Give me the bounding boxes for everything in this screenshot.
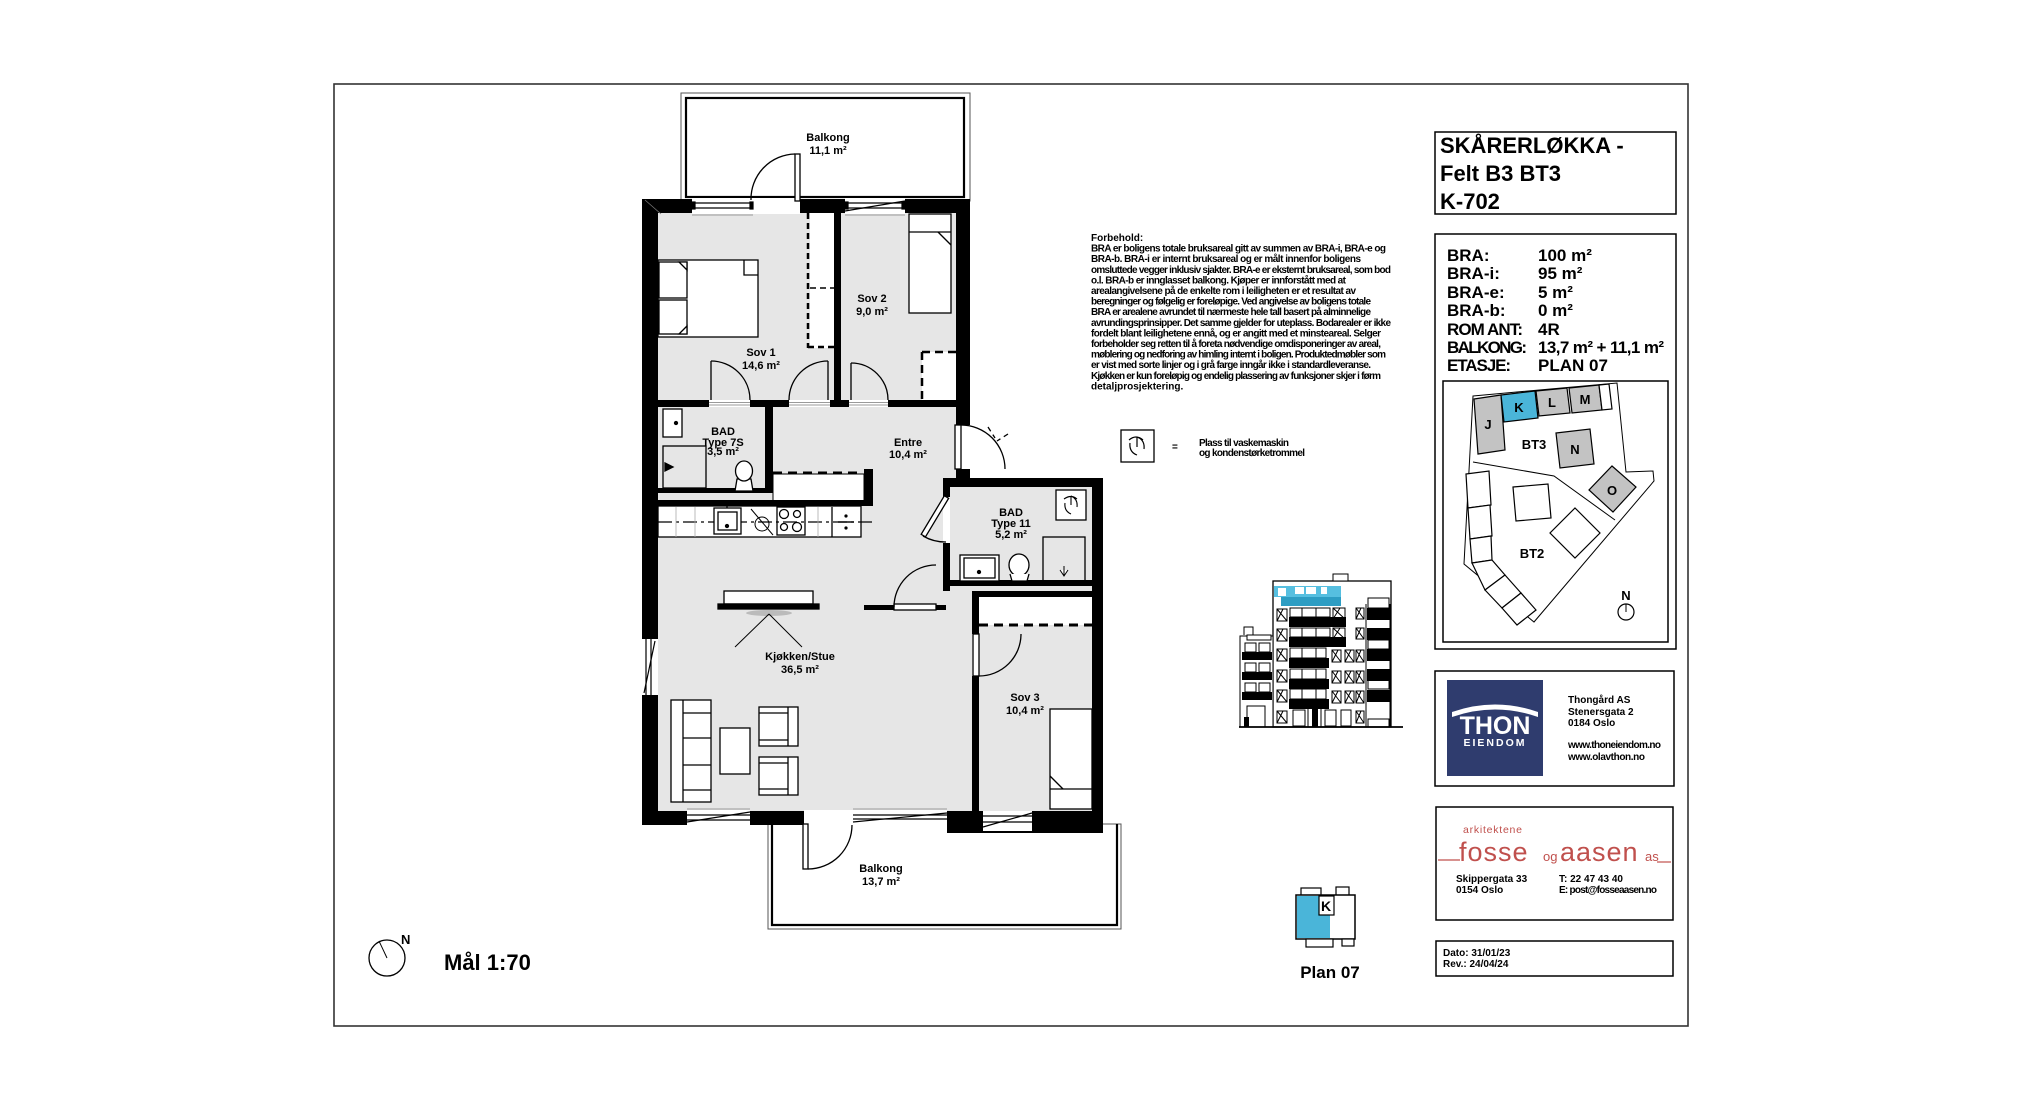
svg-text:Balkong: Balkong (806, 132, 849, 144)
svg-text:E: post@fosseaasen.no: E: post@fosseaasen.no (1559, 885, 1657, 896)
svg-text:BALKONG:: BALKONG: (1447, 338, 1527, 357)
svg-text:11,1 m²: 11,1 m² (809, 145, 847, 157)
svg-text:Sov 2: Sov 2 (857, 293, 886, 305)
svg-text:arkitektene: arkitektene (1463, 824, 1523, 836)
svg-text:BRA-b:: BRA-b: (1447, 301, 1506, 320)
svg-text:møblering og nedforing av himl: møblering og nedforing av himling intern… (1091, 350, 1386, 361)
svg-text:er vist med sorte linjer og i: er vist med sorte linjer og i grå farge … (1091, 359, 1371, 371)
svg-text:Sov 3: Sov 3 (1010, 692, 1039, 704)
svg-text:BRA er arealene avrundet til n: BRA er arealene avrundet til nærmeste he… (1091, 306, 1371, 318)
svg-text:10,4 m²: 10,4 m² (1006, 705, 1044, 717)
svg-text:Thongård AS: Thongård AS (1568, 694, 1631, 706)
svg-text:aasen: aasen (1560, 837, 1639, 867)
svg-text:EIENDOM: EIENDOM (1463, 737, 1526, 749)
svg-text:BRA er boligens totale bruksar: BRA er boligens totale bruksareal gitt a… (1091, 244, 1386, 255)
svg-text:PLAN 07: PLAN 07 (1538, 356, 1608, 375)
svg-text:detaljprosjektering.: detaljprosjektering. (1091, 381, 1183, 392)
svg-text:K-702: K-702 (1440, 189, 1500, 214)
svg-text:13,7 m²: 13,7 m² (862, 876, 900, 888)
svg-text:Rev.: 24/04/24: Rev.: 24/04/24 (1443, 959, 1509, 970)
svg-text:L: L (1548, 395, 1556, 410)
svg-text:5,2 m²: 5,2 m² (995, 529, 1027, 541)
svg-text:5 m²: 5 m² (1538, 283, 1573, 302)
svg-text:fosse: fosse (1459, 837, 1529, 867)
svg-text:omsluttede vegger inklusiv sja: omsluttede vegger inklusiv sjakter. BRA-… (1091, 265, 1391, 276)
svg-text:Skippergata 33: Skippergata 33 (1456, 874, 1528, 885)
svg-text:fordelt blant leilighetene enn: fordelt blant leilighetene ennå, og er a… (1091, 327, 1381, 339)
svg-text:Sov 1: Sov 1 (746, 347, 775, 359)
svg-text:BRA:: BRA: (1447, 246, 1490, 265)
svg-text:www.thoneiendom.no: www.thoneiendom.no (1567, 740, 1661, 751)
svg-text:ROM ANT:: ROM ANT: (1447, 320, 1523, 339)
svg-text:og kondenstørketrommel: og kondenstørketrommel (1199, 448, 1305, 459)
svg-text:Forbehold:: Forbehold: (1091, 233, 1143, 244)
svg-text:36,5 m²: 36,5 m² (781, 664, 819, 676)
svg-text:0 m²: 0 m² (1538, 301, 1573, 320)
svg-text:N: N (1570, 442, 1579, 457)
svg-text:www.olavthon.no: www.olavthon.no (1567, 752, 1645, 763)
svg-text:M: M (1580, 392, 1591, 407)
svg-text:Kjøkken/Stue: Kjøkken/Stue (765, 651, 835, 663)
svg-text:BRA-b. BRA-i er internt bruksa: BRA-b. BRA-i er internt bruksareal og er… (1091, 253, 1361, 265)
svg-text:Dato: 31/01/23: Dato: 31/01/23 (1443, 948, 1511, 959)
svg-text:N: N (1621, 588, 1630, 603)
svg-text:13,7 m² + 11,1 m²: 13,7 m² + 11,1 m² (1538, 338, 1664, 357)
svg-text:SKÅRERLØKKA -: SKÅRERLØKKA - (1440, 132, 1624, 158)
svg-text:100 m²: 100 m² (1538, 246, 1592, 265)
svg-text:O: O (1607, 483, 1617, 498)
svg-text:Kjøkken er kun foreløpig og en: Kjøkken er kun foreløpig og endelig plas… (1091, 371, 1381, 382)
svg-text:=: = (1172, 442, 1178, 453)
svg-text:K: K (1321, 898, 1331, 914)
svg-text:BRA-e:: BRA-e: (1447, 283, 1505, 302)
svg-text:0154 Oslo: 0154 Oslo (1456, 885, 1503, 896)
svg-text:avrundingsprinsipper. Det samm: avrundingsprinsipper. Det samme gjelder … (1091, 318, 1391, 329)
svg-text:4R: 4R (1538, 320, 1560, 339)
svg-text:arealangivelsene på de enkelte: arealangivelsene på de enkelte rom i lei… (1091, 285, 1356, 297)
svg-text:N: N (401, 932, 410, 947)
svg-text:Plan 07: Plan 07 (1300, 963, 1360, 982)
svg-text:og: og (1543, 849, 1557, 864)
svg-text:3,5 m²: 3,5 m² (707, 446, 739, 458)
svg-text:forbeholder seg retten til å f: forbeholder seg retten til å foreta nødv… (1091, 338, 1381, 350)
svg-text:J: J (1484, 417, 1491, 432)
svg-text:Balkong: Balkong (859, 863, 902, 875)
svg-text:10,4 m²: 10,4 m² (889, 449, 927, 461)
svg-text:95 m²: 95 m² (1538, 264, 1583, 283)
svg-text:BT3: BT3 (1522, 437, 1547, 452)
svg-text:Felt B3 BT3: Felt B3 BT3 (1440, 161, 1561, 186)
svg-text:T: 22 47 43 40: T: 22 47 43 40 (1559, 874, 1623, 885)
svg-text:14,6 m²: 14,6 m² (742, 360, 780, 372)
svg-text:beregninger og følgelig er for: beregninger og følgelig er foreløpige. V… (1091, 297, 1371, 308)
svg-text:9,0 m²: 9,0 m² (856, 306, 888, 318)
svg-text:THON: THON (1460, 712, 1531, 740)
svg-text:BRA-i:: BRA-i: (1447, 264, 1500, 283)
svg-text:K: K (1514, 400, 1524, 415)
svg-text:ETASJE:: ETASJE: (1447, 356, 1511, 375)
svg-text:0184 Oslo: 0184 Oslo (1568, 718, 1615, 729)
svg-text:Entre: Entre (894, 437, 922, 449)
svg-text:Stenersgata 2: Stenersgata 2 (1568, 707, 1634, 718)
svg-text:Mål 1:70: Mål 1:70 (444, 950, 531, 975)
svg-text:BT2: BT2 (1520, 546, 1545, 561)
svg-text:o.l. BRA-b er innglasset balko: o.l. BRA-b er innglasset balkong. Kjøper… (1091, 274, 1347, 286)
